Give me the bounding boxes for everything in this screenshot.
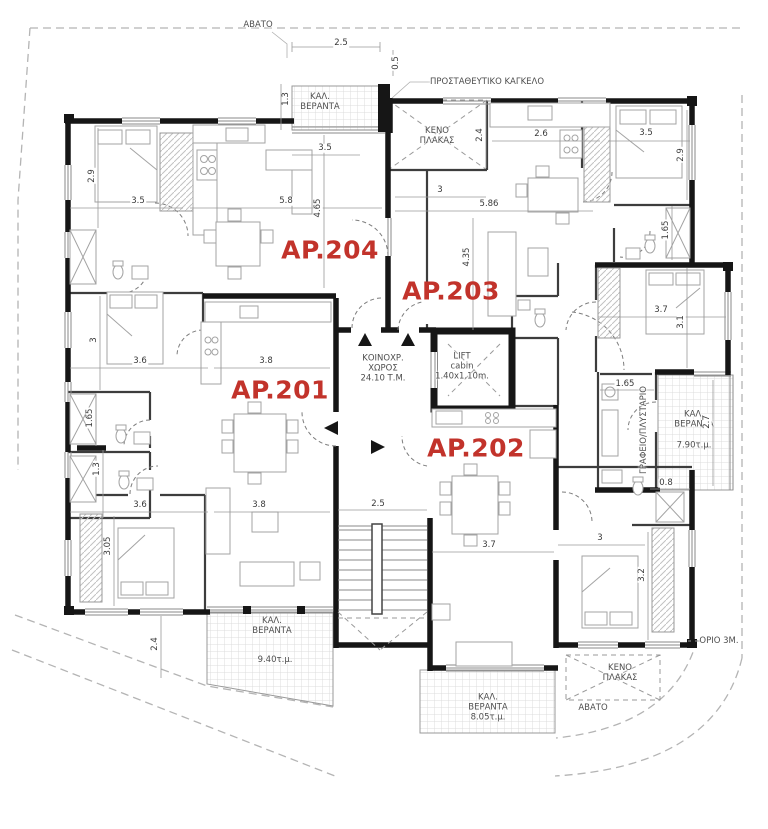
area-label: ΚΑΛ. ΒΕΡΑΝΤΑ 8.05τ.μ. — [468, 693, 508, 724]
apartment-label: AP.201 — [231, 376, 329, 405]
apartment-label: AP.203 — [402, 277, 500, 306]
dimension-label: 3.7 — [653, 306, 669, 315]
dimension-label: 1.3 — [282, 91, 291, 107]
dimension-label: 2.9 — [88, 168, 97, 184]
dimension-label: 3.8 — [258, 357, 274, 366]
area-label: ΑΒΑΤΟ — [578, 703, 607, 713]
staircase — [338, 524, 427, 650]
dimension-label: 3.1 — [677, 314, 686, 330]
area-label: ΠΡΟΣΤΑΘΕΥΤΙΚΟ ΚΑΓΚΕΛΟ — [430, 77, 544, 87]
dimension-label: 0.5 — [392, 55, 401, 71]
dimension-label: 2.9 — [677, 147, 686, 163]
dimension-label: 3.5 — [638, 129, 654, 138]
dimension-label: 5.8 — [278, 197, 294, 206]
dimension-label: 0.8 — [658, 479, 674, 488]
area-label: LIFT cabin 1.40x1.10m. — [435, 352, 489, 383]
dimension-label: 5.86 — [479, 200, 500, 209]
floor-plan: AP.204AP.203AP.201AP.202ΑΒΑΤΟΚΑΛ. ΒΕΡΑΝΤ… — [0, 0, 768, 829]
dimension-label: 3.6 — [132, 501, 148, 510]
dimension-label: 3.5 — [317, 144, 333, 153]
dimension-label: 3 — [596, 534, 603, 543]
dimension-label: 3 — [436, 186, 443, 195]
dimension-label: 3.6 — [132, 357, 148, 366]
apartment-label: AP.202 — [427, 434, 525, 463]
dimension-label: 2.4 — [476, 127, 485, 143]
dimension-label: 3.2 — [638, 567, 647, 583]
area-label: ΚΕΝΟ ΠΛΑΚΑΣ — [603, 663, 638, 683]
dimension-label: 3 — [90, 336, 99, 343]
dimension-label: 1.65 — [662, 220, 671, 241]
dimension-label: 3.8 — [251, 501, 267, 510]
dimension-label: 1.65 — [86, 408, 95, 429]
dimension-label: 3.05 — [104, 536, 113, 557]
area-label: ΚΕΝΟ ΠΛΑΚΑΣ — [420, 126, 455, 146]
area-label: 9.40τ.μ. — [258, 655, 293, 665]
apartment-label: AP.204 — [281, 236, 379, 265]
dimension-label: 2.6 — [533, 130, 549, 139]
area-label: ΟΡΙΟ 3Μ. — [699, 636, 738, 646]
dimension-label: 1.65 — [615, 380, 636, 389]
area-label: ΚΑΛ. ΒΕΡΑΝΤΑ — [300, 92, 340, 112]
dimension-label: 2.5 — [370, 500, 386, 509]
dimension-label: 2.4 — [151, 636, 160, 652]
dimension-label: 1.3 — [93, 461, 102, 477]
dimension-label: 4.35 — [463, 247, 472, 268]
area-label: ΚΑΛ. ΒΕΡΑΝΤΑ — [252, 616, 292, 636]
area-label: ΚΟΙΝΟΧΡ. ΧΩΡΟΣ 24.10 Τ.Μ. — [361, 354, 406, 385]
dimension-label: 2.7 — [703, 414, 712, 430]
plan-drawing — [0, 0, 768, 829]
area-label: ΓΡΑΦΕΙΟ/ΠΛΥΣΤΑΡΙΟ — [639, 386, 649, 474]
area-label: ΑΒΑΤΟ — [243, 20, 272, 30]
dimension-label: 3.7 — [481, 541, 497, 550]
dimension-label: 2.5 — [333, 39, 349, 48]
dimension-label: 3.5 — [130, 197, 146, 206]
dimension-label: 4.65 — [314, 198, 323, 219]
